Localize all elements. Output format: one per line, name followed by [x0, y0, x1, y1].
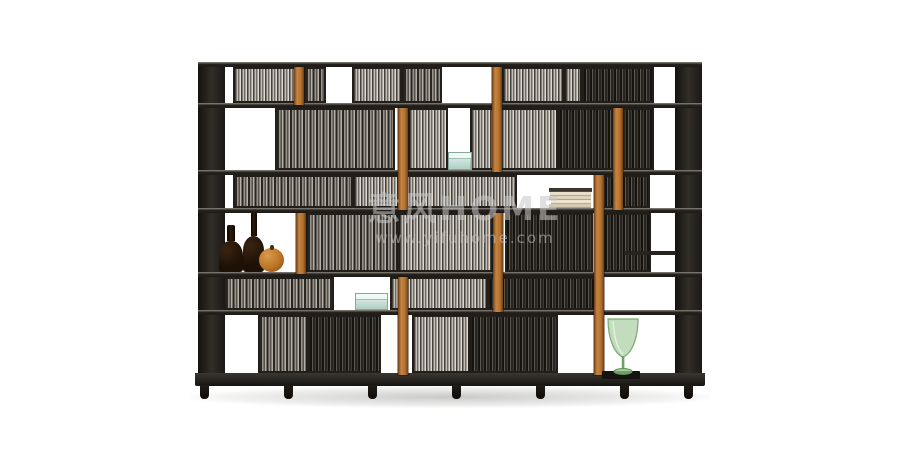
- slat-panel: [258, 315, 308, 373]
- slat-panel: [488, 277, 598, 310]
- gourd-stem: [270, 245, 274, 250]
- slat-panel: [352, 67, 402, 103]
- shelf: [198, 170, 702, 175]
- shelf: [198, 208, 702, 213]
- slat-panel: [304, 67, 326, 103]
- slat-panel: [233, 175, 353, 208]
- leather-strap: [493, 213, 503, 312]
- shelf-foot: [284, 385, 293, 399]
- shelf-foot: [452, 385, 461, 399]
- bottle-neck: [251, 212, 257, 236]
- side-panel: [198, 62, 225, 386]
- gourd-sphere: [259, 248, 284, 272]
- leather-strap: [296, 213, 306, 274]
- shelf-foot: [684, 385, 693, 399]
- slat-panel: [505, 213, 593, 272]
- slat-panel: [597, 175, 650, 208]
- shelf-foot: [536, 385, 545, 399]
- goblet-glass: [605, 318, 641, 376]
- shelving-unit: [198, 62, 702, 402]
- shelf: [198, 103, 702, 108]
- slat-panel: [502, 67, 564, 103]
- slat-panel: [402, 67, 442, 103]
- leather-strap: [594, 175, 604, 375]
- shelf-foot: [200, 385, 209, 399]
- slat-panel: [408, 108, 448, 170]
- slat-panel: [603, 213, 651, 272]
- slat-panel: [224, 277, 334, 310]
- teal-glass-box-lower: [355, 293, 388, 310]
- slat-panel: [558, 108, 654, 170]
- mini-shelf: [624, 251, 676, 255]
- leather-strap: [294, 67, 304, 105]
- leather-strap: [492, 67, 502, 172]
- shelf: [198, 62, 702, 67]
- leather-strap: [398, 277, 408, 375]
- side-panel: [675, 62, 702, 386]
- box-lid: [449, 153, 471, 159]
- slat-panel: [582, 67, 654, 103]
- shelf-foot: [620, 385, 629, 399]
- slat-panel: [470, 315, 558, 373]
- slat-panel: [308, 315, 381, 373]
- box-lid: [356, 294, 387, 300]
- slat-panel: [470, 108, 558, 170]
- slat-panel: [353, 175, 517, 208]
- product-photo: 意风HOME www.yifuhome.com: [0, 0, 900, 450]
- bottle-neck: [227, 225, 235, 241]
- book: [549, 204, 591, 208]
- shelf: [198, 310, 702, 315]
- leather-strap: [613, 108, 623, 210]
- slat-panel: [398, 213, 493, 272]
- shelf-foot: [368, 385, 377, 399]
- book-stack: [549, 188, 592, 208]
- slat-panel: [233, 67, 296, 103]
- bottle-tall: [219, 225, 243, 272]
- leather-strap: [398, 108, 408, 210]
- bottle-body: [219, 241, 243, 272]
- slat-panel: [275, 108, 395, 170]
- green-goblet-vase: [605, 318, 641, 376]
- slat-panel: [412, 315, 470, 373]
- shelf: [198, 272, 702, 277]
- slat-panel: [564, 67, 582, 103]
- slat-panel: [306, 213, 398, 272]
- teal-glass-box-upper: [448, 152, 472, 170]
